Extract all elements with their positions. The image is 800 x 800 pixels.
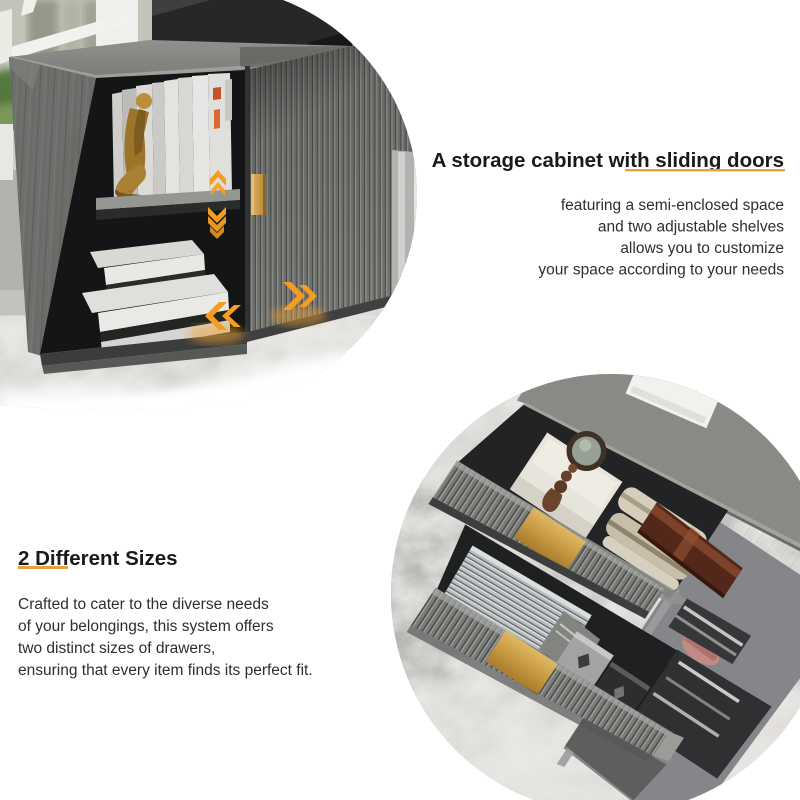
svg-text:ensuring that every item finds: ensuring that every item finds its perfe… xyxy=(18,662,313,679)
svg-text:of your belongings, this syste: of your belongings, this system offers xyxy=(18,618,274,635)
svg-text:featuring a semi-enclosed spac: featuring a semi-enclosed space xyxy=(561,197,784,214)
svg-text:and two adjustable shelves: and two adjustable shelves xyxy=(598,219,784,236)
svg-text:Crafted to cater to the divers: Crafted to cater to the diverse needs xyxy=(18,596,269,613)
svg-text:A storage cabinet with sliding: A storage cabinet with sliding doors xyxy=(432,149,784,172)
svg-text:your space according to your n: your space according to your needs xyxy=(538,262,784,279)
svg-text:2 Different Sizes: 2 Different Sizes xyxy=(18,547,178,570)
svg-text:allows you to customize: allows you to customize xyxy=(620,240,784,257)
svg-text:two distinct sizes of drawers,: two distinct sizes of drawers, xyxy=(18,640,215,657)
